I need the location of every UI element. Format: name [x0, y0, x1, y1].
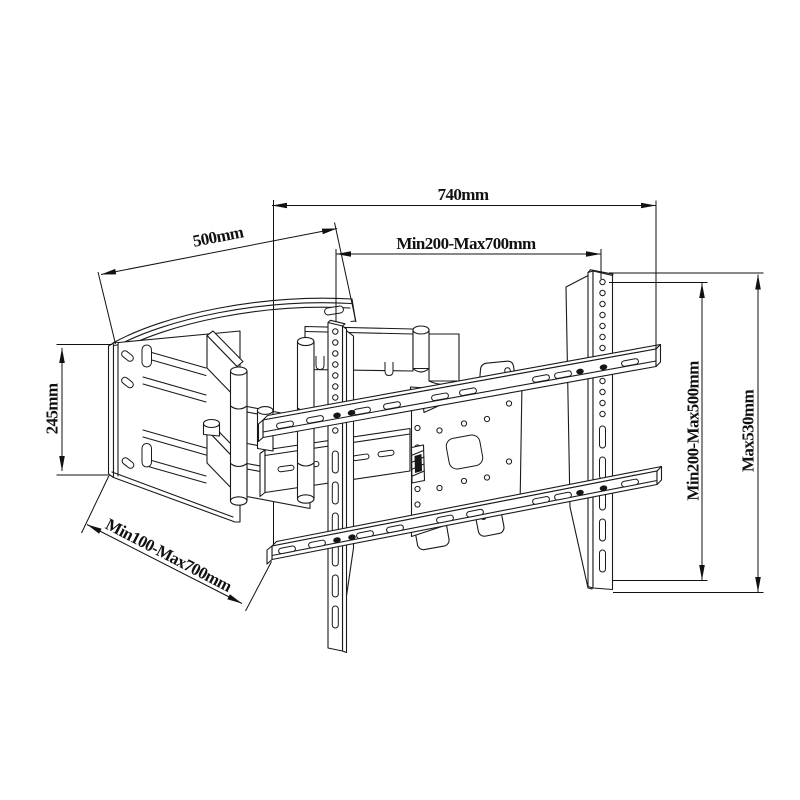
dim-label-wall-plate-width: 500mm	[191, 222, 245, 250]
pivot-column-wall-side	[231, 367, 248, 505]
tv-mount-drawing: 740mm Min200-Max700mm 500mm 245mm Min100…	[0, 0, 800, 800]
dimension-min200-max500: Min200-Max500mm	[609, 283, 708, 581]
dim-label-top-width: 740mm	[438, 185, 489, 204]
dim-label-bracket-max-height: Max530mm	[739, 390, 758, 473]
pivot-pin-front	[204, 420, 220, 437]
dim-label-extension-range: Min100-Max700mm	[102, 515, 235, 596]
wall-plate-slot	[142, 444, 152, 468]
arm-hook	[316, 356, 324, 370]
dim-label-vertical-adjust: Min200-Max500mm	[684, 361, 703, 501]
dim-label-horizontal-adjust: Min200-Max700mm	[396, 234, 536, 253]
technical-drawing-canvas: 740mm Min200-Max700mm 500mm 245mm Min100…	[0, 0, 800, 800]
arm-hook	[385, 362, 393, 376]
left-tv-bracket	[328, 320, 354, 652]
vesa-latch	[412, 445, 425, 483]
dimension-500mm: 500mm	[98, 222, 356, 344]
dimension-min200-max700: Min200-Max700mm	[336, 234, 601, 322]
right-tv-bracket	[566, 270, 613, 590]
vesa-center-opening	[445, 434, 484, 471]
dim-label-wall-plate-height: 245mm	[43, 383, 62, 434]
dimension-245mm: 245mm	[43, 345, 113, 476]
wall-plate-slot	[142, 345, 152, 367]
